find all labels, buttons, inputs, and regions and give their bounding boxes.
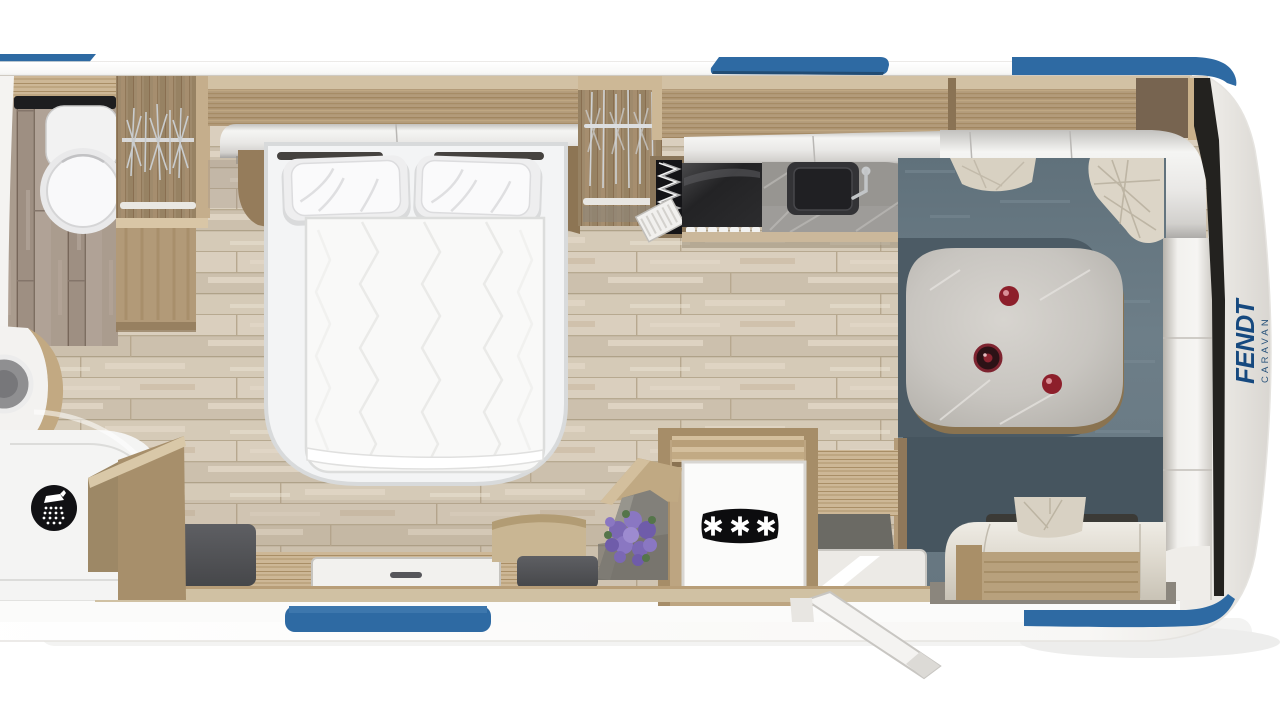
svg-text:CARAVAN: CARAVAN [1260, 316, 1271, 383]
svg-text:FENDT: FENDT [1230, 297, 1260, 384]
